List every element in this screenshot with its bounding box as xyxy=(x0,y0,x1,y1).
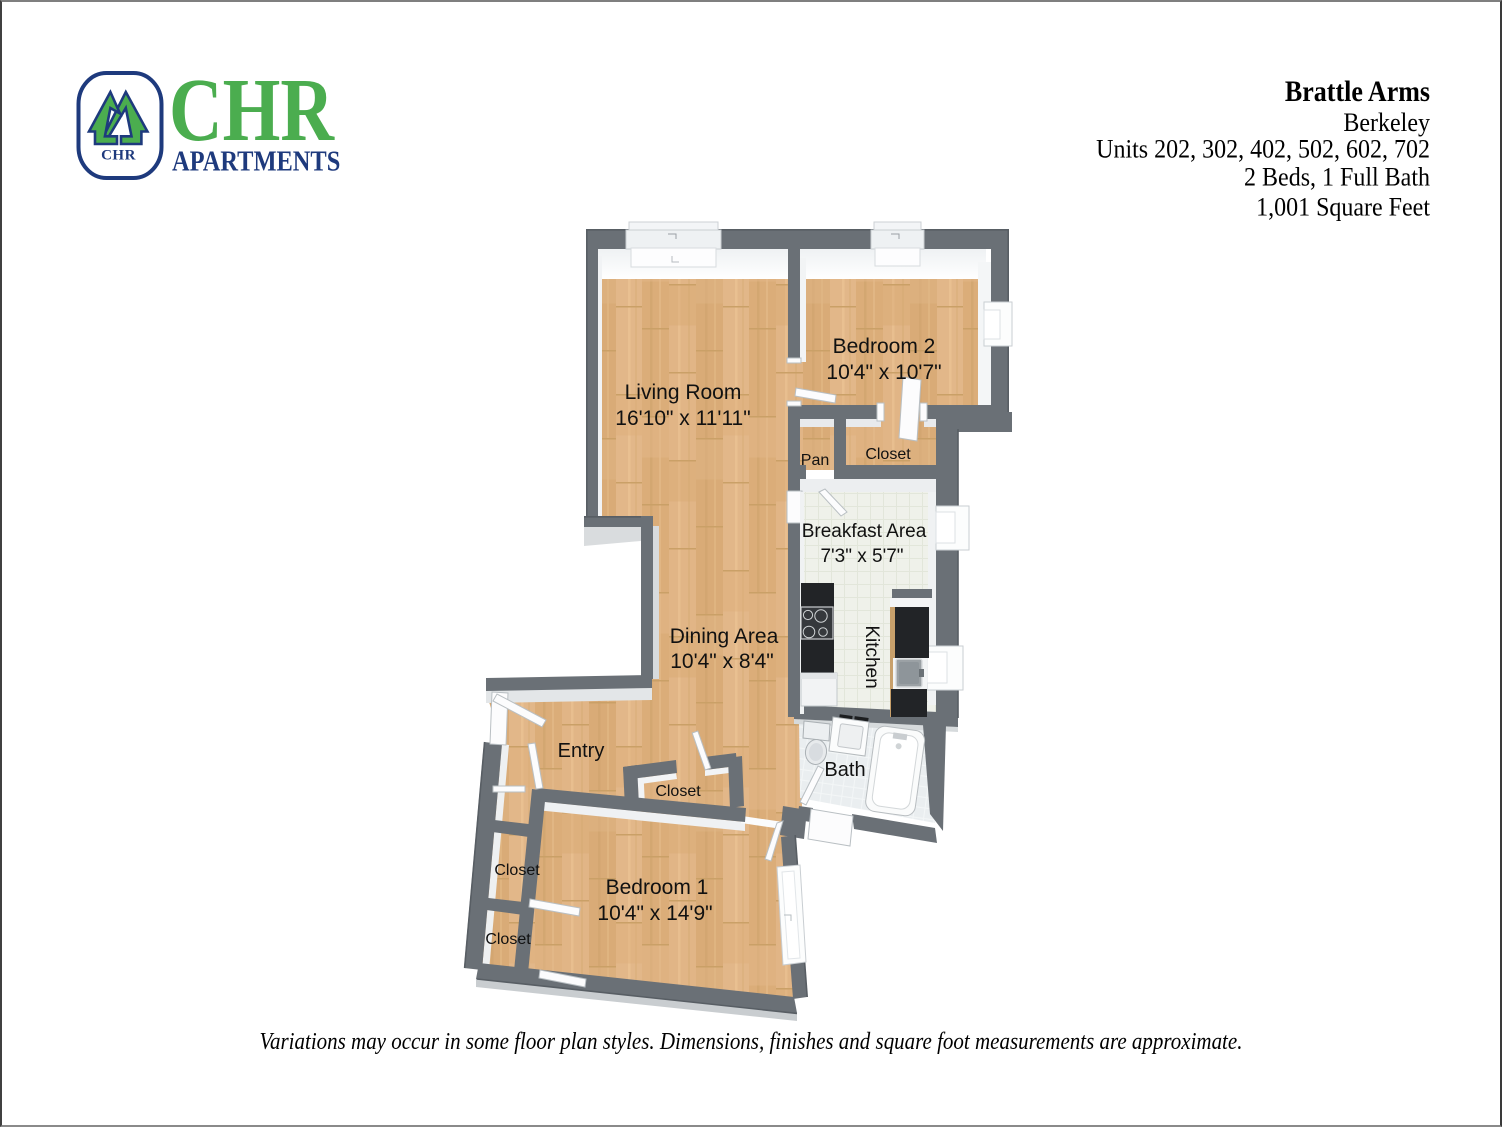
svg-text:Entry: Entry xyxy=(558,740,605,762)
svg-text:16'10" x 11'11": 16'10" x 11'11" xyxy=(615,407,750,430)
svg-text:10'4" x 14'9": 10'4" x 14'9" xyxy=(597,902,712,925)
svg-text:1,001 Square Feet: 1,001 Square Feet xyxy=(1256,191,1430,222)
svg-text:Bedroom 2: Bedroom 2 xyxy=(833,335,936,358)
svg-text:Units 202, 302, 402, 502, 602,: Units 202, 302, 402, 502, 602, 702 xyxy=(1096,133,1430,164)
svg-text:2 Beds, 1 Full Bath: 2 Beds, 1 Full Bath xyxy=(1244,161,1430,192)
svg-text:Pan: Pan xyxy=(801,452,829,469)
svg-text:Closet: Closet xyxy=(655,783,701,800)
svg-text:Closet: Closet xyxy=(865,446,911,463)
svg-text:Brattle Arms: Brattle Arms xyxy=(1285,75,1430,108)
svg-text:Breakfast Area: Breakfast Area xyxy=(802,521,927,542)
svg-text:10'4" x 10'7": 10'4" x 10'7" xyxy=(826,361,941,384)
svg-text:Closet: Closet xyxy=(485,931,531,948)
svg-text:APARTMENTS: APARTMENTS xyxy=(172,146,340,177)
svg-text:Variations may occur in some f: Variations may occur in some floor plan … xyxy=(260,1028,1243,1055)
svg-text:Living Room: Living Room xyxy=(625,381,742,404)
svg-text:10'4" x 8'4": 10'4" x 8'4" xyxy=(670,650,774,673)
svg-text:Bath: Bath xyxy=(824,759,865,781)
svg-text:CHR: CHR xyxy=(101,148,136,164)
svg-text:Bedroom 1: Bedroom 1 xyxy=(606,876,709,899)
svg-text:Kitchen: Kitchen xyxy=(861,625,882,688)
svg-text:7'3" x 5'7": 7'3" x 5'7" xyxy=(820,546,903,567)
svg-text:Dining Area: Dining Area xyxy=(670,625,779,648)
svg-text:Closet: Closet xyxy=(494,862,540,879)
svg-text:CHR: CHR xyxy=(169,59,335,159)
